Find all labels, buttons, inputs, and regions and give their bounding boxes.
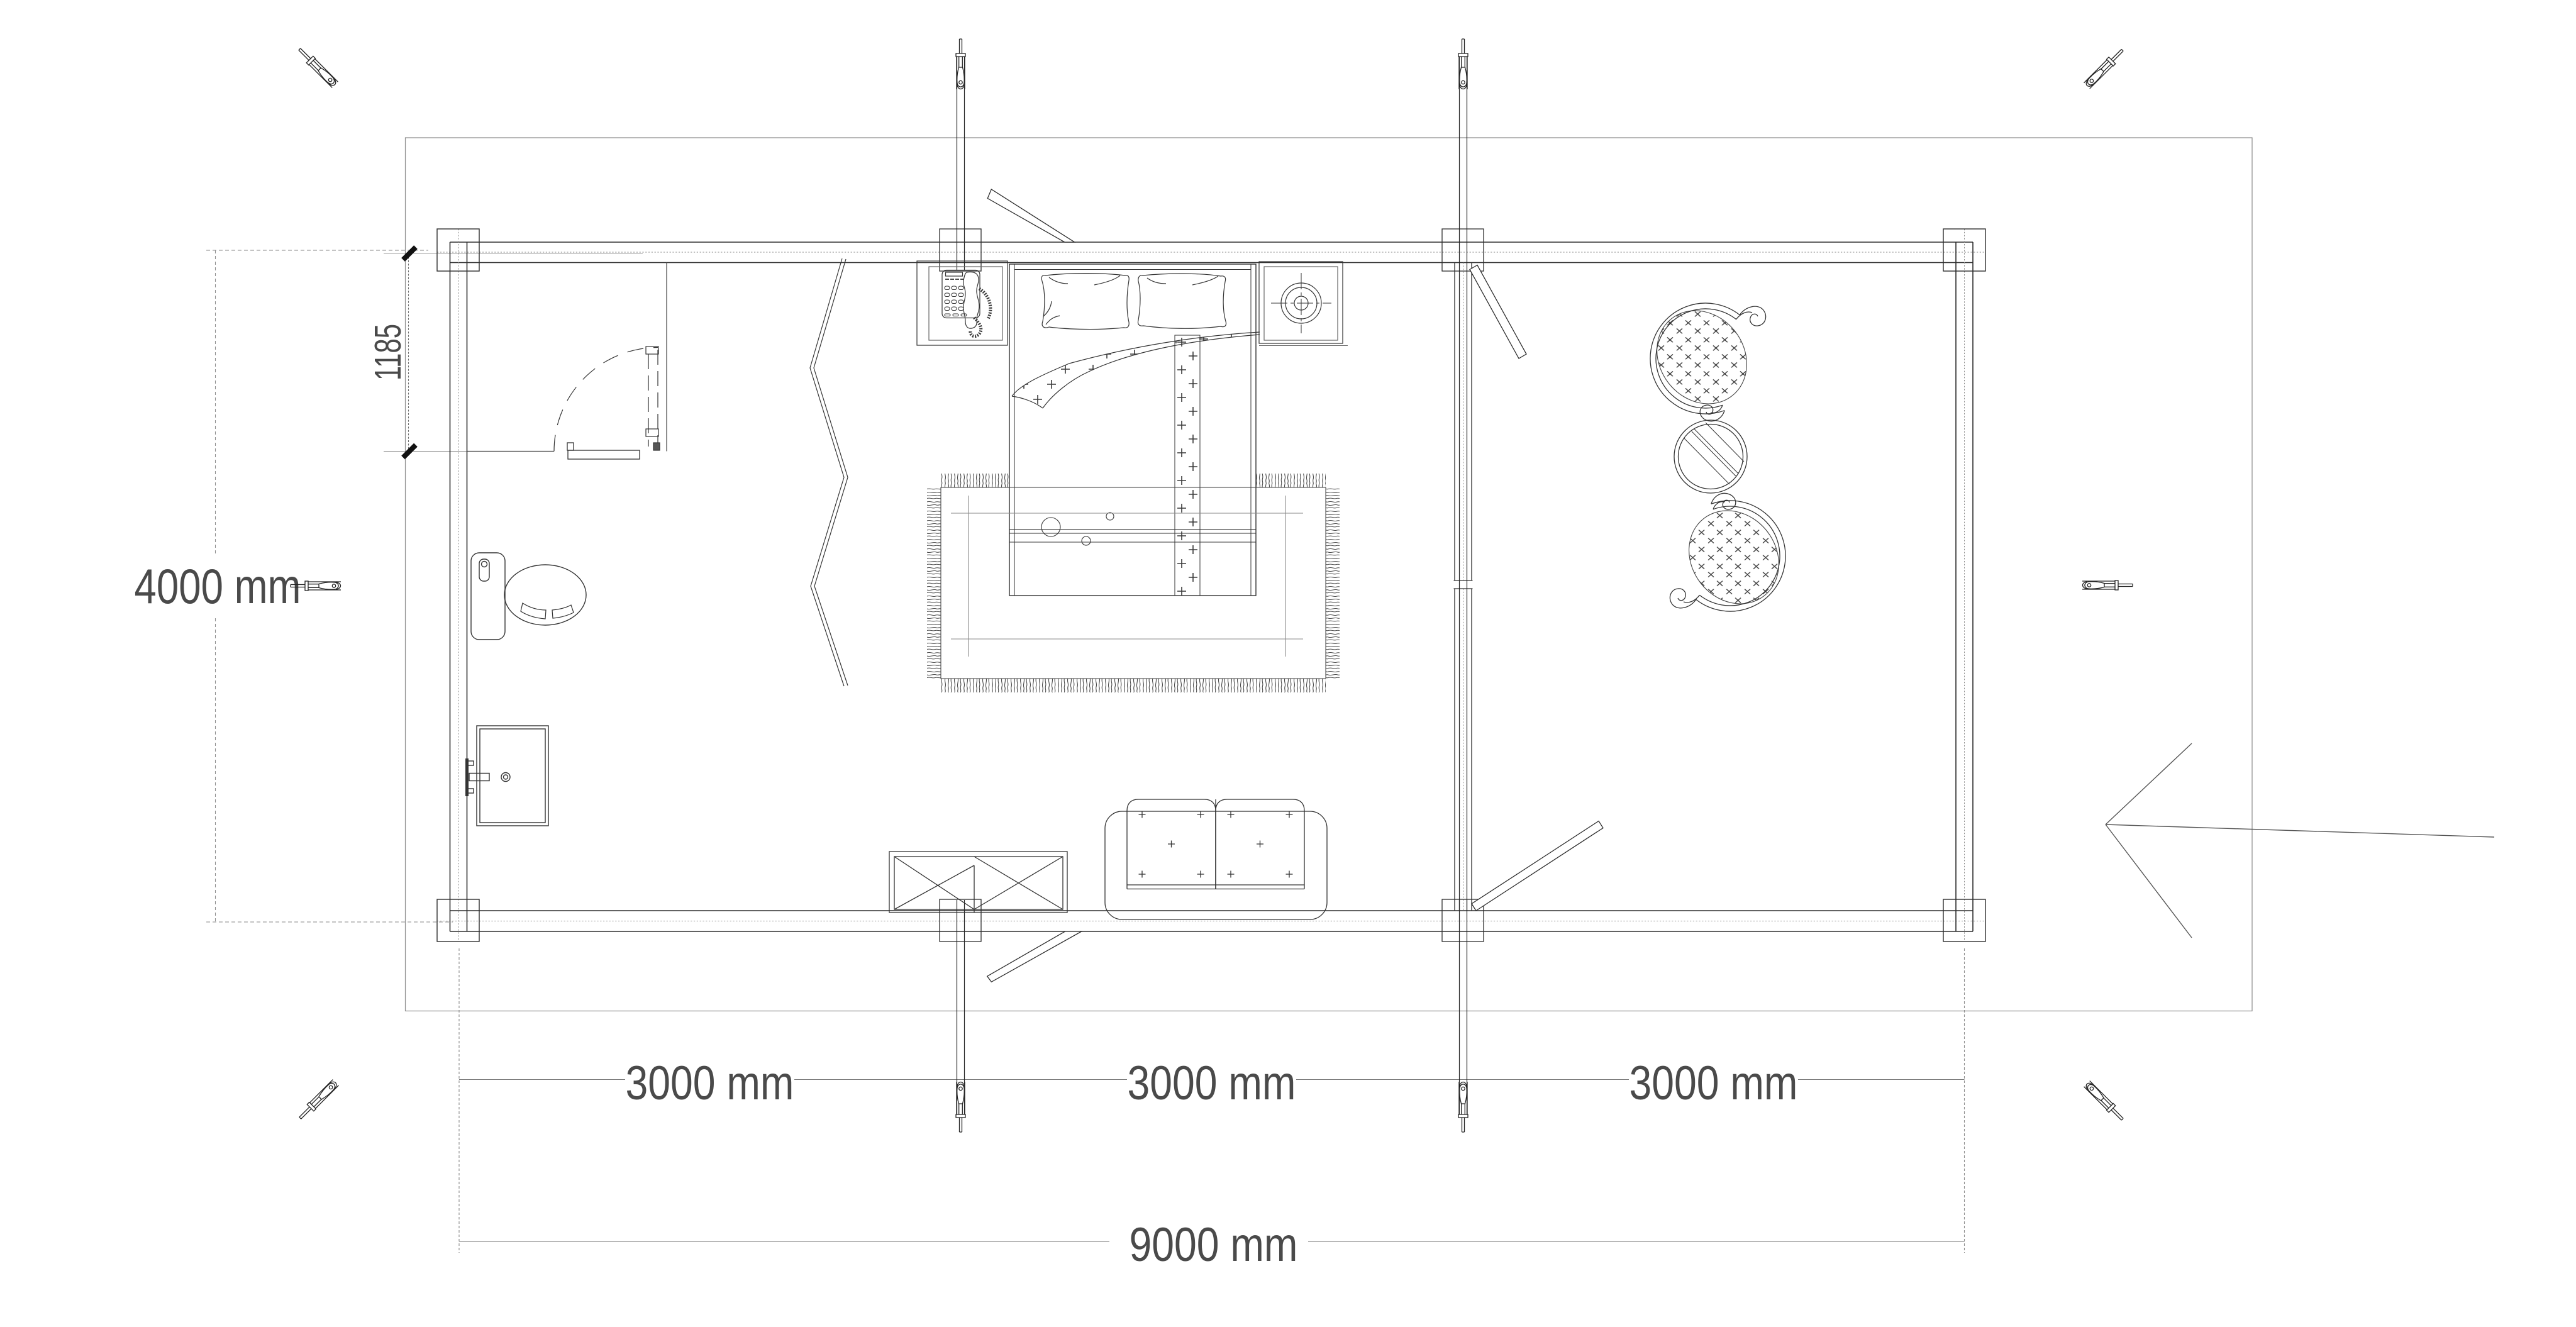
svg-text:3000 mm: 3000 mm: [1128, 1057, 1296, 1110]
svg-text:1185: 1185: [367, 324, 409, 380]
svg-text:3000 mm: 3000 mm: [1629, 1057, 1798, 1110]
svg-text:4000 mm: 4000 mm: [135, 558, 301, 614]
svg-text:3000 mm: 3000 mm: [626, 1057, 794, 1110]
svg-text:9000 mm: 9000 mm: [1130, 1218, 1298, 1272]
